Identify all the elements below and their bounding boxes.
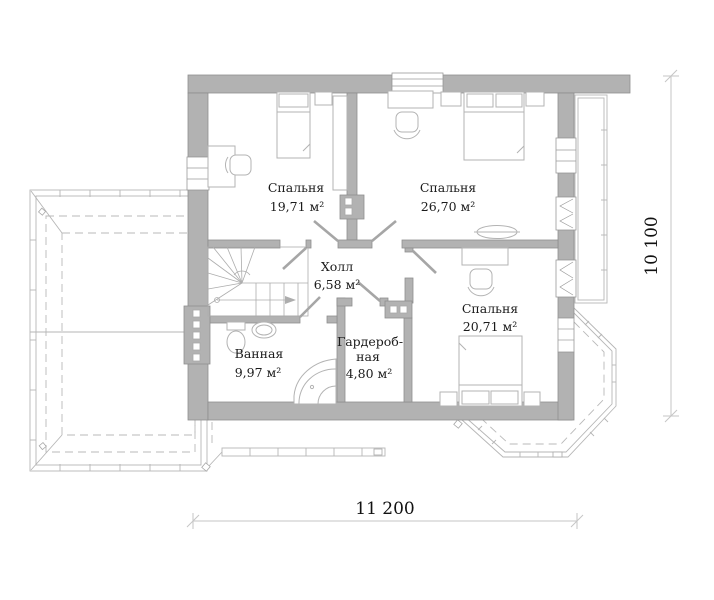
bedroom2-furniture: [388, 91, 544, 239]
window-right-2: [556, 197, 576, 230]
bed-double: [459, 336, 522, 406]
nightstand: [526, 92, 544, 106]
door-bathroom: [300, 297, 320, 317]
bedroom1-area: 19,71 м²: [270, 199, 325, 214]
window-right-3: [556, 260, 576, 297]
nightstand: [441, 92, 461, 106]
wall-vent-ellipse: [474, 226, 520, 239]
garage-roof: [30, 190, 207, 471]
door-bedroom1: [314, 221, 338, 241]
desk: [462, 248, 508, 265]
bedroom3-label: Спальня: [462, 301, 518, 316]
window-left: [187, 157, 209, 190]
bed-single: [277, 92, 310, 158]
wardrobe-label-2: ная: [356, 349, 380, 364]
chair: [468, 269, 494, 296]
dimension-height-label: 10 100: [642, 216, 662, 275]
bedroom2-area: 26,70 м²: [421, 199, 476, 214]
window-top: [392, 73, 443, 93]
hall-label: Холл: [321, 259, 353, 274]
dimension-width: 11 200: [187, 499, 583, 529]
window-right-1: [556, 138, 576, 173]
bathtub-corner: [294, 359, 336, 404]
nightstand: [440, 392, 457, 406]
nightstand: [524, 392, 540, 406]
door-bedroom3: [413, 251, 436, 273]
dimension-width-label: 11 200: [355, 499, 414, 519]
door-bedroom2: [372, 221, 396, 241]
bedroom2-label: Спальня: [420, 180, 476, 195]
staircase: [208, 247, 308, 316]
chimney-bedroom-wall: [340, 195, 364, 219]
chimney-left-wall: [184, 306, 210, 364]
wardrobe-label-1: Гардероб-: [337, 334, 403, 349]
rear-eave-strip: [202, 422, 385, 471]
floor-plan-page: Спальня 19,71 м² Спальня 26,70 м² Спальн…: [0, 0, 714, 600]
balcony: [575, 95, 607, 303]
closet: [333, 96, 347, 190]
dimension-height: 10 100: [642, 70, 679, 422]
bed-double: [464, 92, 524, 160]
desk: [388, 91, 433, 108]
bedroom1-label: Спальня: [268, 180, 324, 195]
door-wardrobe: [358, 282, 380, 301]
window-right-bay: [558, 318, 574, 352]
hall-area: 6,58 м²: [314, 277, 361, 292]
wardrobe-area: 4,80 м²: [346, 366, 393, 381]
door-stairs: [283, 248, 306, 269]
chimney-wardrobe: [385, 301, 412, 318]
nightstand: [315, 92, 332, 105]
chair: [394, 112, 420, 139]
sink: [252, 322, 276, 338]
bathroom-fixtures: [227, 322, 336, 404]
bedroom3-area: 20,71 м²: [463, 319, 518, 334]
bathroom-area: 9,97 м²: [235, 365, 282, 380]
bedroom1-furniture: [208, 92, 347, 190]
floor-plan-drawing: Спальня 19,71 м² Спальня 26,70 м² Спальн…: [0, 0, 714, 600]
bathroom-label: Ванная: [235, 346, 284, 361]
